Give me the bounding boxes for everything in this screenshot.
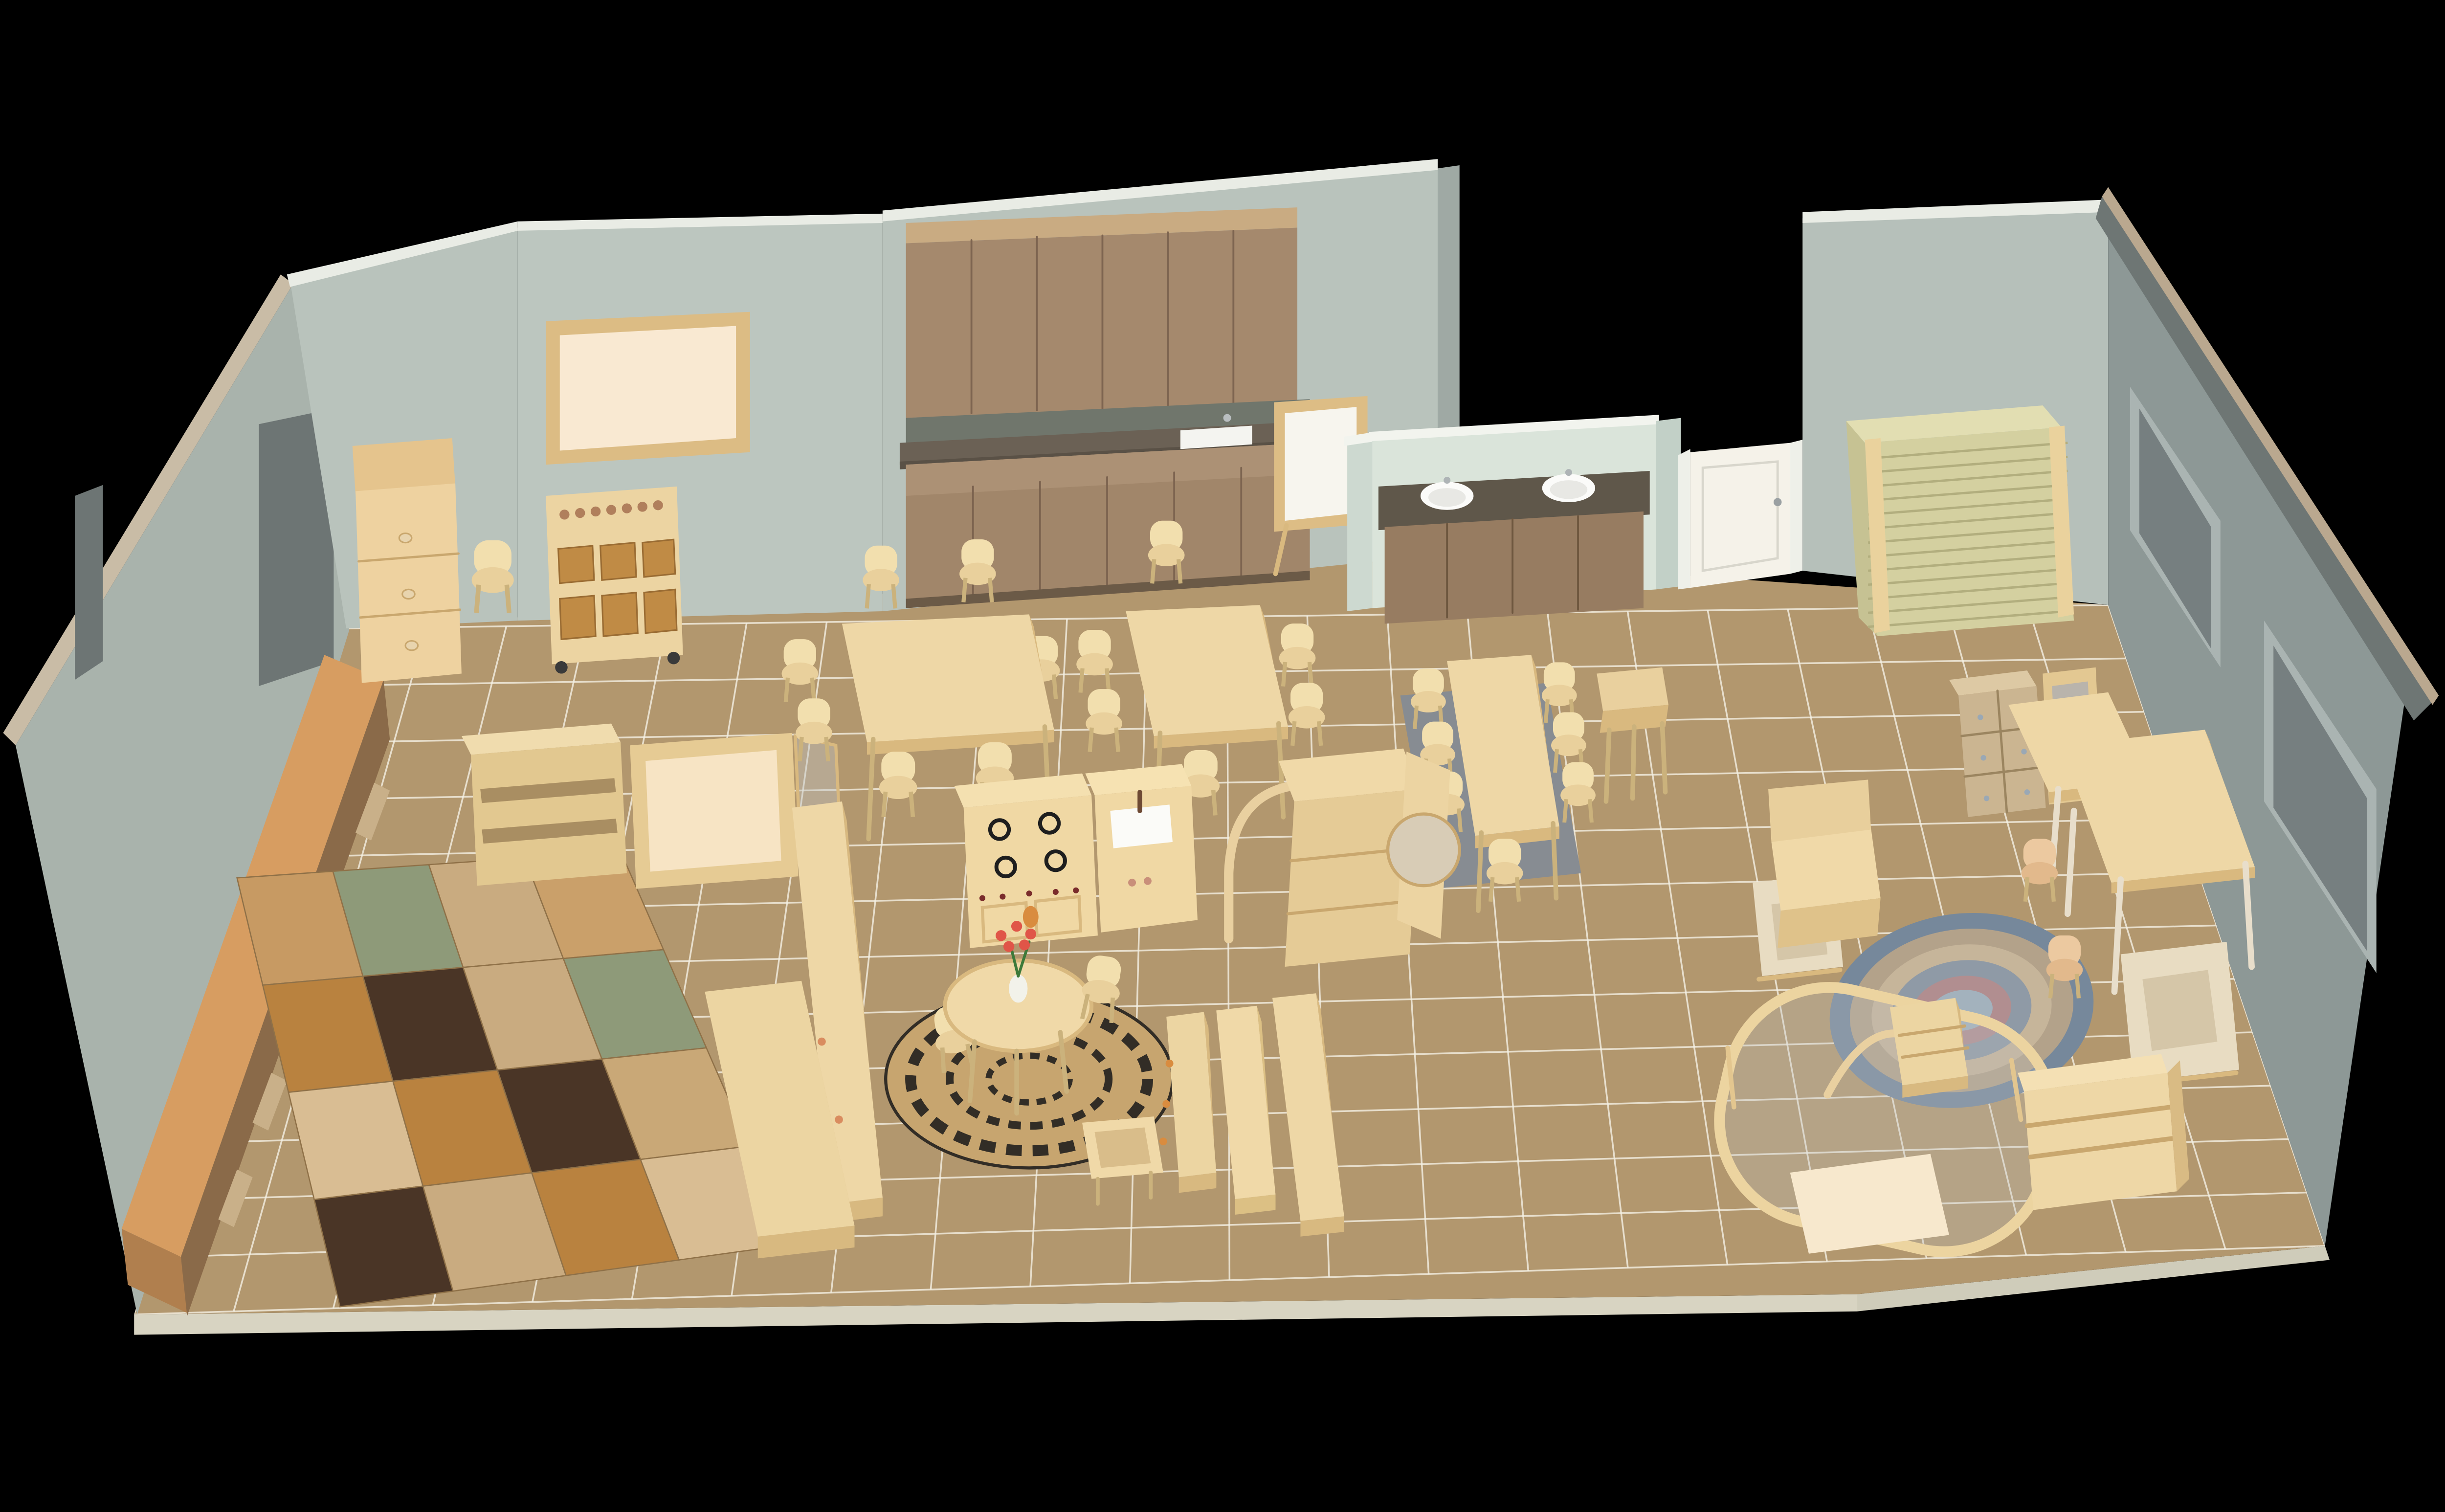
child-chair-leg	[1283, 662, 1285, 687]
child-chair-leg	[884, 792, 886, 817]
stove-knob	[1073, 888, 1079, 893]
art-cart-basket	[602, 593, 638, 636]
bathroom-nook	[1344, 415, 1681, 623]
shelf-handle	[1166, 1060, 1174, 1067]
vanity-cabinet	[1385, 511, 1644, 624]
art-cart-caster	[667, 652, 680, 665]
whiteboard	[560, 326, 736, 450]
vanity-sink-bowl	[1428, 488, 1466, 507]
child-chair-leg	[1546, 699, 1548, 723]
art-cart-cup	[591, 507, 600, 516]
vanity-faucet	[1565, 469, 1572, 476]
tulip	[1011, 921, 1022, 932]
play-sink-handle	[1128, 879, 1136, 887]
art-cart-cup	[622, 503, 632, 513]
tulip	[1003, 941, 1014, 952]
child-chair-leg	[1178, 559, 1180, 583]
dresser-knob	[405, 641, 418, 650]
settee-back	[1597, 667, 1668, 711]
3d-viewport[interactable]	[0, 0, 2445, 1483]
child-chair-leg	[786, 678, 788, 702]
art-cart-cup	[575, 508, 585, 518]
flower-vase	[1009, 975, 1027, 1002]
child-chair-leg	[963, 578, 965, 602]
child-chair-leg	[1555, 749, 1557, 773]
table-rect-top	[842, 614, 1054, 742]
art-cart-basket	[560, 596, 596, 639]
art-cart-cup	[638, 502, 647, 511]
child-chair-leg	[990, 578, 992, 602]
child-chair-leg	[1490, 877, 1492, 902]
render-canvas	[0, 0, 2445, 1483]
entry-door	[1678, 440, 1802, 589]
dresser-knob	[402, 589, 415, 599]
child-chair-leg	[1213, 790, 1215, 816]
wall-chair-leg	[476, 585, 479, 613]
child-chair-leg	[1590, 799, 1592, 823]
bin-handle	[2024, 789, 2030, 795]
bin-handle	[1980, 755, 1986, 760]
stove-knob	[979, 895, 985, 901]
art-cart-cup	[606, 505, 616, 515]
dresser-knob	[399, 534, 412, 543]
art-cart-cup	[559, 510, 569, 519]
stove-knob	[1026, 890, 1032, 896]
art-cart-basket	[643, 539, 675, 577]
open-shelf-back	[471, 742, 627, 886]
table-rect-top	[1126, 605, 1288, 736]
bin-handle	[2021, 749, 2026, 754]
art-cart-caster	[555, 661, 568, 674]
child-chair-leg	[1415, 706, 1417, 729]
bath-wall-right	[1656, 418, 1681, 590]
toddler-chair-leg	[2025, 877, 2027, 902]
mirror-storage-front	[1285, 789, 1419, 967]
door-frame-right	[1790, 440, 1803, 574]
child-chair-leg	[1564, 799, 1566, 823]
art-cart-basket	[600, 543, 636, 580]
art-cart-basket	[644, 589, 677, 633]
book-cabinet-knob	[835, 1115, 843, 1124]
art-cart-cup	[653, 500, 663, 510]
bin-handle	[1978, 714, 1983, 720]
child-chair-leg	[812, 678, 814, 702]
child-chair-leg	[1116, 728, 1118, 752]
play-kitchen	[955, 764, 1198, 948]
bath-wall-left	[1347, 437, 1372, 611]
easel-board	[1285, 407, 1357, 521]
bin-handle	[1984, 796, 1989, 801]
child-chair-leg	[911, 792, 913, 817]
tulip	[996, 930, 1006, 941]
wall-chair-leg	[507, 585, 509, 613]
tulip	[1019, 939, 1030, 950]
settee-leg	[1606, 730, 1609, 801]
settee-leg	[1633, 727, 1634, 799]
child-chair-leg	[1090, 728, 1092, 752]
doll-cradle-inner	[1095, 1127, 1151, 1168]
child-chair-leg	[1081, 668, 1083, 693]
child-chair-leg	[893, 584, 895, 609]
mirror-divider-panel	[645, 750, 781, 872]
play-sink-handle	[1144, 877, 1152, 885]
child-chair-leg	[867, 584, 869, 609]
child-chair-leg	[1107, 668, 1109, 693]
changing-table-top	[1771, 829, 1880, 911]
child-chair-leg	[1292, 721, 1294, 746]
child-chair-leg	[826, 737, 828, 761]
toddler-chair-leg	[2052, 877, 2054, 902]
end-panel-mirror	[1388, 814, 1460, 886]
toddler-chair-leg	[2077, 974, 2079, 999]
child-chair-leg	[1459, 808, 1461, 832]
door-handle	[1774, 498, 1782, 506]
shelf-handle	[1162, 1100, 1170, 1108]
book-ledge-small-top	[1890, 998, 1968, 1086]
scene-root	[3, 159, 2439, 1334]
stove-knob	[1053, 889, 1059, 895]
child-chair-leg	[1054, 674, 1056, 699]
art-cart-basket	[558, 546, 594, 583]
child-chair-leg	[1152, 559, 1154, 583]
child-chair-leg	[800, 737, 802, 761]
oven-handle	[1023, 906, 1039, 928]
child-chair-leg	[1319, 721, 1321, 746]
vanity-sink-bowl	[1550, 480, 1588, 499]
cot-stack	[1846, 405, 2074, 636]
table-leg	[1553, 823, 1556, 898]
glider-seat	[2142, 970, 2217, 1051]
child-chair-leg	[1310, 662, 1311, 687]
table-leg	[1478, 833, 1481, 911]
child-chair-leg	[1517, 877, 1519, 902]
table-rect	[842, 614, 1054, 755]
left-door-glass-far	[75, 485, 103, 680]
stove-knob	[1000, 893, 1005, 899]
shelf-handle	[1159, 1137, 1167, 1145]
door-frame-left	[1678, 449, 1690, 589]
settee-leg	[1662, 724, 1665, 792]
vanity-faucet	[1444, 477, 1450, 484]
book-cabinet-knob	[818, 1038, 826, 1046]
dresser-body	[356, 484, 462, 683]
kitchen-faucet	[1223, 414, 1231, 422]
toddler-chair-leg	[2050, 974, 2052, 999]
tulip	[1025, 929, 1036, 939]
